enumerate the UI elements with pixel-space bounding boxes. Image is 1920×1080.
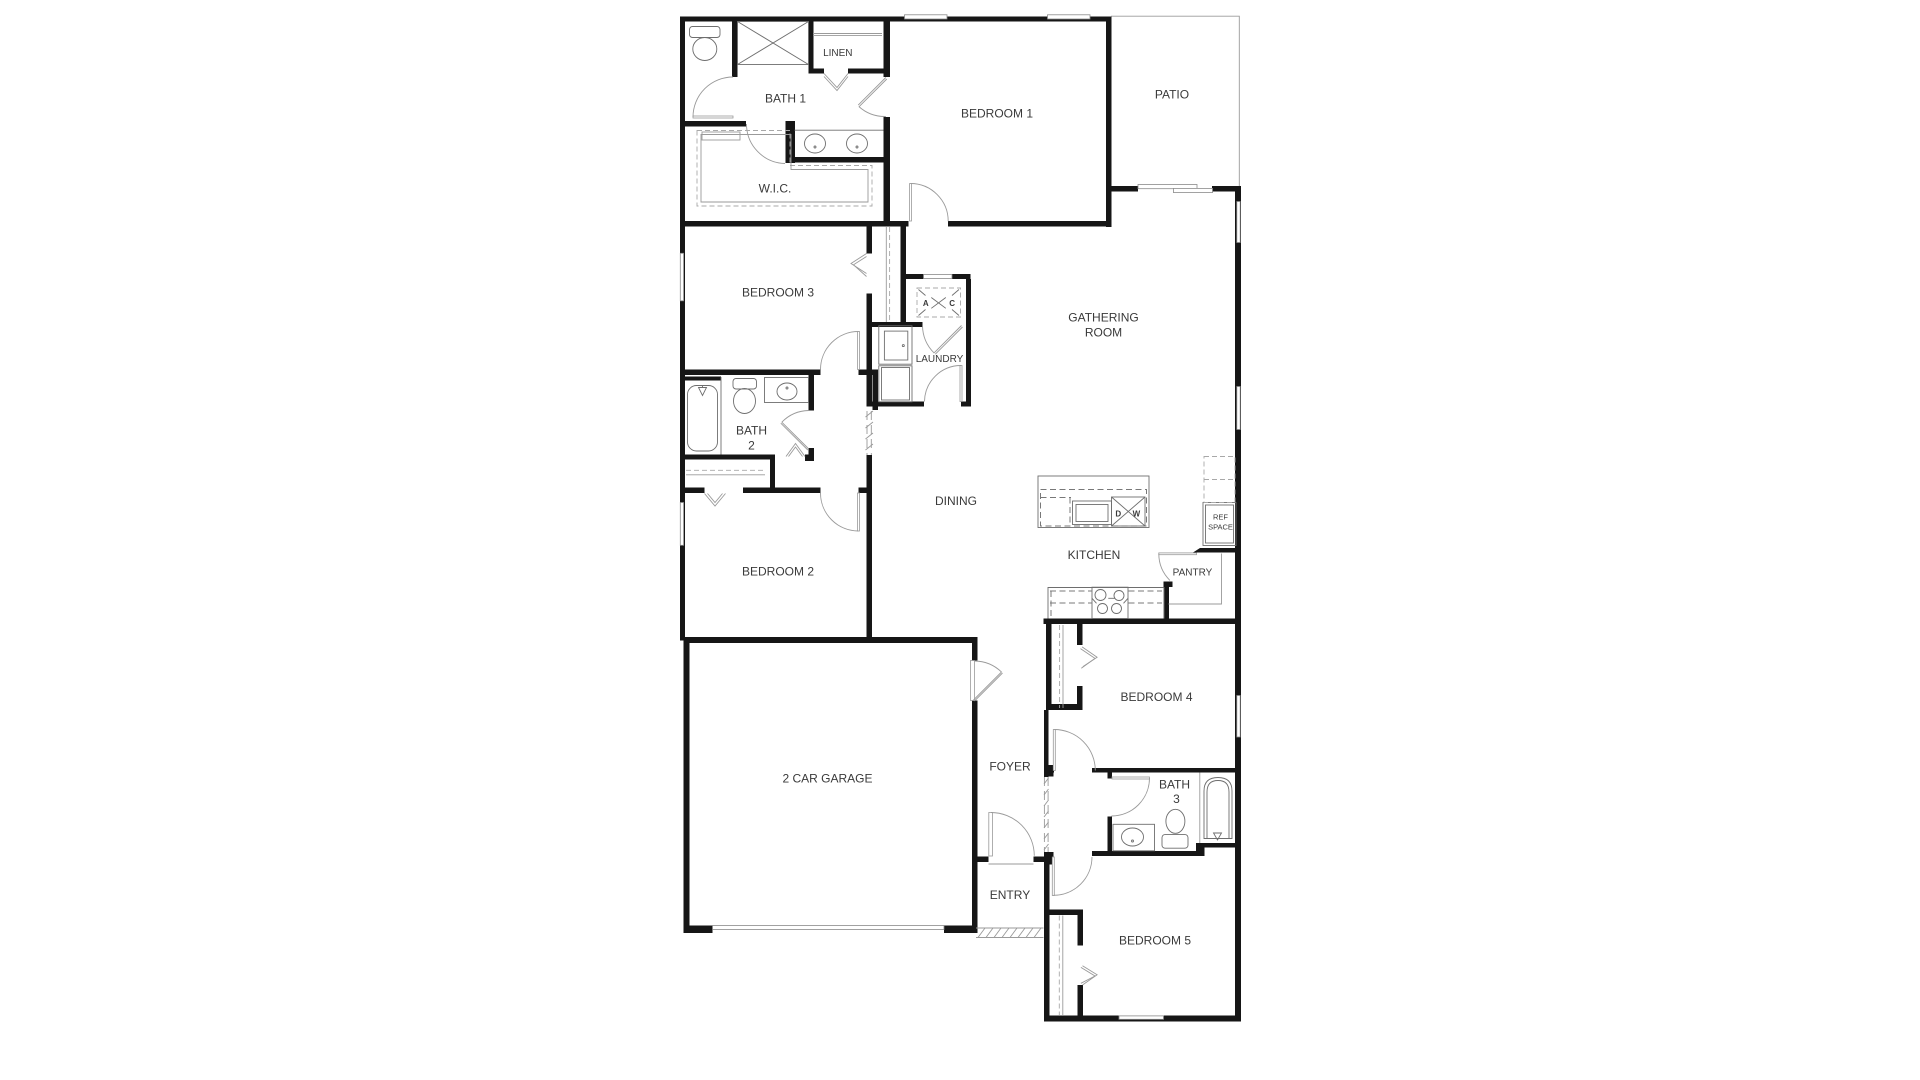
svg-text:W.I.C.: W.I.C. [759, 182, 792, 196]
svg-text:W: W [1133, 510, 1141, 519]
svg-text:DINING: DINING [935, 494, 977, 508]
svg-text:BEDROOM 1: BEDROOM 1 [961, 107, 1033, 121]
svg-text:2 CAR GARAGE: 2 CAR GARAGE [782, 772, 872, 786]
svg-text:PATIO: PATIO [1155, 88, 1189, 102]
svg-text:C: C [949, 299, 955, 308]
svg-text:LINEN: LINEN [823, 48, 852, 59]
svg-text:FOYER: FOYER [989, 760, 1031, 774]
svg-text:LAUNDRY: LAUNDRY [916, 354, 964, 365]
svg-text:D: D [1115, 510, 1121, 519]
svg-text:BEDROOM 2: BEDROOM 2 [742, 565, 814, 579]
svg-text:PANTRY: PANTRY [1173, 568, 1213, 579]
svg-text:GATHERING: GATHERING [1068, 311, 1138, 325]
svg-text:ROOM: ROOM [1085, 326, 1122, 340]
svg-text:A: A [923, 299, 929, 308]
svg-text:ENTRY: ENTRY [990, 888, 1030, 902]
svg-text:BATH: BATH [1159, 778, 1190, 792]
svg-text:2: 2 [748, 439, 755, 453]
svg-text:SPACE: SPACE [1208, 523, 1233, 532]
svg-text:BEDROOM 4: BEDROOM 4 [1120, 690, 1192, 704]
svg-text:KITCHEN: KITCHEN [1068, 548, 1121, 562]
svg-text:BEDROOM 3: BEDROOM 3 [742, 286, 814, 300]
svg-text:BATH 1: BATH 1 [765, 92, 806, 106]
svg-text:3: 3 [1173, 792, 1180, 806]
svg-text:REF: REF [1213, 513, 1228, 522]
svg-text:BEDROOM 5: BEDROOM 5 [1119, 934, 1191, 948]
svg-text:BATH: BATH [736, 424, 767, 438]
